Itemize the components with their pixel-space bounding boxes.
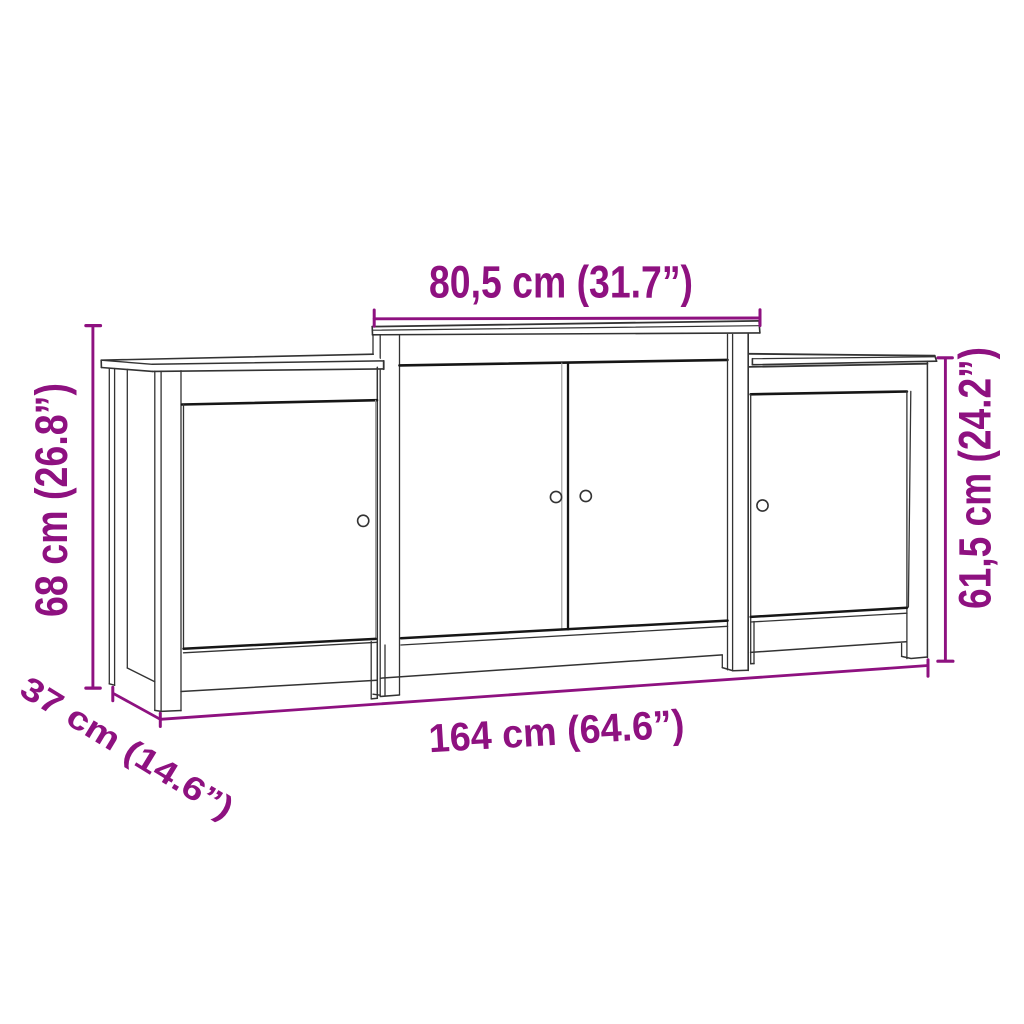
svg-text:68 cm (26.8”): 68 cm (26.8”) xyxy=(26,383,77,617)
svg-text:80,5 cm (31.7”): 80,5 cm (31.7”) xyxy=(429,257,693,308)
svg-text:61,5 cm (24.2”): 61,5 cm (24.2”) xyxy=(950,347,1001,609)
